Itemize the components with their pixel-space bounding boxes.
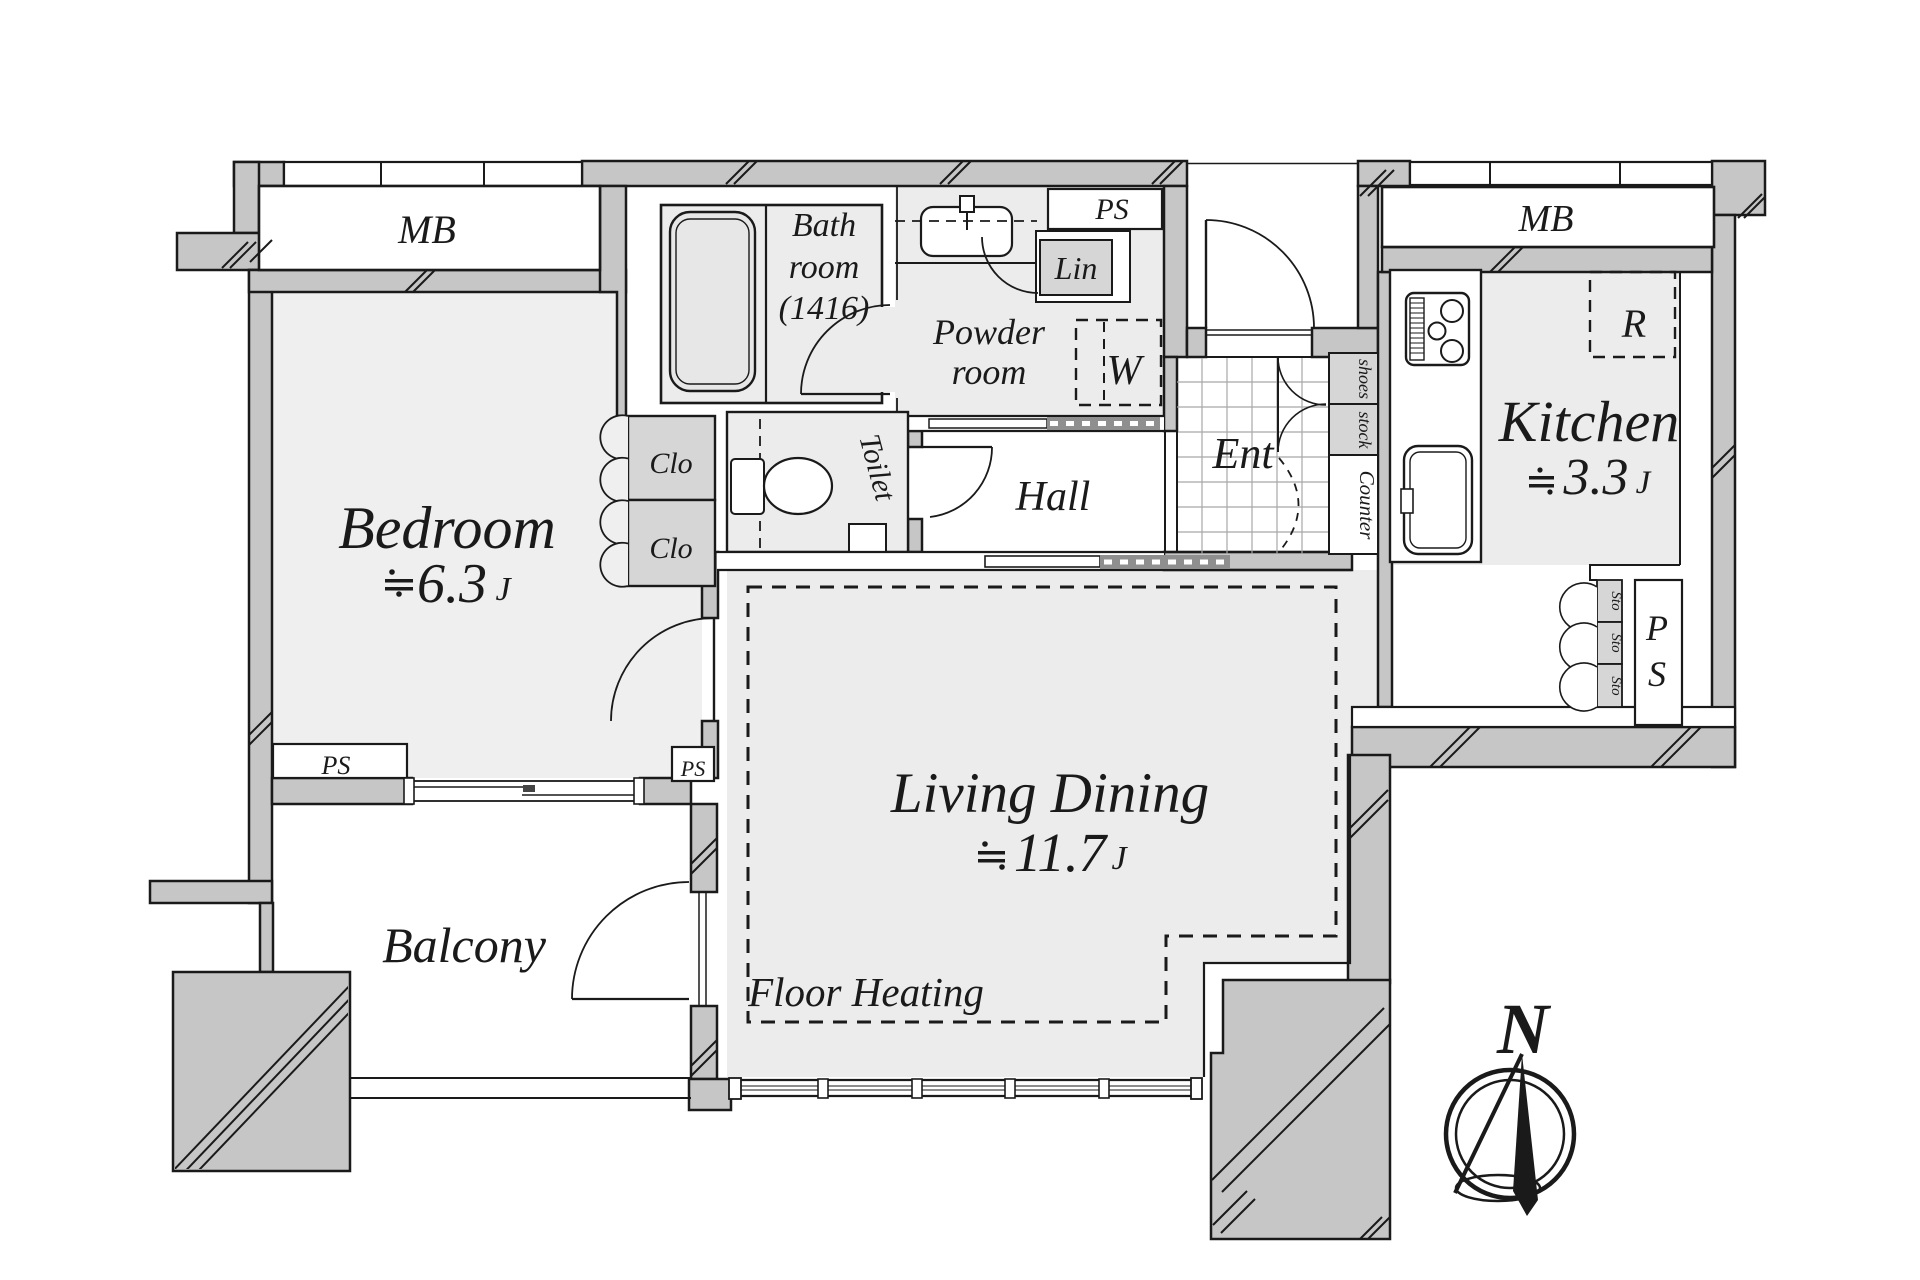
svg-text:W: W <box>1107 348 1146 394</box>
svg-text:shoes: shoes <box>1355 359 1375 399</box>
svg-text:Sto: Sto <box>1608 633 1624 653</box>
svg-text:MB: MB <box>1518 198 1574 240</box>
svg-text:Bath: Bath <box>792 207 856 244</box>
svg-text:N: N <box>1496 989 1552 1069</box>
svg-text:Sto: Sto <box>1608 591 1624 611</box>
svg-text:J: J <box>495 571 512 608</box>
svg-text:3.3: 3.3 <box>1563 449 1629 506</box>
svg-text:Ent: Ent <box>1211 429 1275 478</box>
svg-text:6.3: 6.3 <box>417 553 487 615</box>
svg-text:stock: stock <box>1355 412 1375 450</box>
svg-text:(1416): (1416) <box>779 290 870 327</box>
svg-text:Kitchen: Kitchen <box>1498 389 1679 454</box>
svg-text:Clo: Clo <box>649 447 692 480</box>
svg-text:PS: PS <box>680 756 705 781</box>
svg-text:Hall: Hall <box>1015 474 1091 520</box>
svg-text:P: P <box>1645 608 1668 648</box>
svg-text:MB: MB <box>397 207 456 252</box>
svg-text:11.7: 11.7 <box>1014 822 1109 883</box>
svg-text:Powder: Powder <box>932 312 1046 352</box>
svg-text:R: R <box>1621 301 1646 346</box>
svg-text:Clo: Clo <box>649 532 692 565</box>
svg-text:room: room <box>952 352 1027 392</box>
svg-text:PS: PS <box>321 751 351 780</box>
svg-text:S: S <box>1648 654 1666 694</box>
svg-text:J: J <box>1111 840 1128 877</box>
svg-text:room: room <box>789 249 860 286</box>
svg-text:Living Dining: Living Dining <box>890 762 1209 825</box>
svg-text:J: J <box>1636 465 1652 501</box>
svg-text:PS: PS <box>1094 193 1128 226</box>
svg-text:Sto: Sto <box>1608 676 1624 696</box>
svg-text:Lin: Lin <box>1054 250 1098 286</box>
svg-text:Balcony: Balcony <box>382 917 547 973</box>
svg-text:Counter: Counter <box>1355 471 1379 541</box>
svg-text:Floor Heating: Floor Heating <box>747 969 984 1015</box>
svg-text:Bedroom: Bedroom <box>338 495 556 561</box>
